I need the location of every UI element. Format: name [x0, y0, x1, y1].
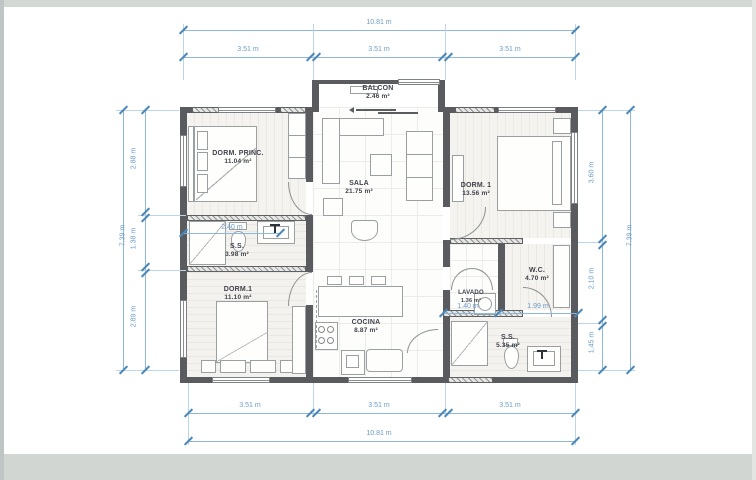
dim-label-right-seg: 2.10 m: [589, 249, 596, 309]
bed-fold-line: [216, 332, 268, 362]
dim-label-top-seg: 3.51 m: [450, 46, 570, 53]
stove-burner: [318, 326, 325, 333]
bed-foot-cushion: [250, 360, 276, 373]
window: [498, 107, 556, 113]
window: [212, 377, 270, 383]
wall-lavado-wc: [498, 244, 505, 310]
room-area: 8.87 m²: [340, 327, 392, 335]
side-table: [323, 198, 343, 216]
dim-label-top-seg: 3.51 m: [188, 46, 308, 53]
room-label-wc: W.C. 4.70 m²: [514, 267, 560, 283]
wall-dormprinc-sala: [306, 107, 313, 182]
dim-line-interior-lavado-wc: [443, 313, 579, 314]
stove-burner: [327, 326, 334, 333]
dim-line-top-total: [183, 30, 576, 31]
stool: [371, 276, 386, 285]
stool: [327, 276, 342, 285]
room-label-cocina: COCINA 8.87 m²: [340, 319, 392, 335]
dim-label-bottom-seg: 3.51 m: [190, 402, 310, 409]
hatched-wall: [450, 238, 523, 244]
sliding-door-panel: [356, 109, 396, 111]
room-name: DORM.1: [204, 286, 272, 294]
floor-plan: 10.81 m 3.51 m 3.51 m 3.51 m 3.51 m 3.51…: [0, 0, 756, 480]
room-label-bano-social: S.S. 3.98 m²: [214, 243, 260, 259]
dim-line-left-segments: [145, 110, 146, 371]
room-area: 3.98 m²: [214, 251, 260, 259]
dim-label-interior-wc: 1.99 m: [498, 303, 578, 310]
dim-label-left-seg: 1.38 m: [131, 209, 138, 269]
extension-line: [116, 370, 179, 371]
dim-line-interior-bath: [183, 233, 281, 234]
kitchen-sink-basin: [346, 355, 359, 368]
dim-label-left-total: 7.39 m: [120, 206, 127, 266]
room-name: S.S.: [485, 334, 531, 342]
stove-burner: [318, 337, 325, 344]
bath-vanity-basin: [533, 351, 555, 366]
faucet-icon: [541, 352, 543, 359]
dim-label-bottom-total: 10.81 m: [319, 430, 439, 437]
wall-sala-dorm1-mid: [443, 240, 450, 267]
room-area: 1.36 m²: [447, 297, 495, 305]
sliding-door-arrow-icon: [349, 107, 354, 113]
dim-label-left-seg: 2.89 m: [131, 287, 138, 347]
window: [180, 135, 187, 187]
dresser-dorm1-left: [292, 306, 306, 374]
closet-shelf-line: [289, 135, 305, 136]
wall-bath-right: [306, 215, 313, 272]
window: [571, 132, 578, 204]
stove-burner: [327, 337, 334, 344]
kitchen-island: [318, 286, 403, 317]
dim-label-bottom-seg: 3.51 m: [450, 402, 570, 409]
dim-label-right-seg: 1.45 m: [589, 313, 596, 373]
room-label-dorm1-left: DORM.1 11.10 m²: [204, 286, 272, 302]
shower-diagonal: [451, 321, 488, 366]
room-area: 11.04 m²: [198, 158, 278, 166]
window: [218, 107, 276, 113]
window: [348, 377, 412, 383]
dim-label-right-total: 7.39 m: [627, 206, 634, 266]
sofa-side: [322, 118, 340, 184]
nightstand: [553, 212, 571, 228]
counter-dashed-line: [316, 290, 317, 348]
wall-dorm1left-right: [306, 305, 313, 377]
room-area: 11.10 m²: [204, 294, 272, 302]
extension-line: [575, 24, 576, 80]
room-area: 13.56 m²: [444, 190, 508, 198]
coffee-table: [370, 154, 392, 176]
room-name: DORM. 1: [444, 182, 508, 190]
dim-label-left-seg: 2.88 m: [131, 129, 138, 189]
dim-label-interior-bath: 2.40 m: [183, 224, 281, 231]
kitchen-counter: [366, 349, 403, 372]
room-name: W.C.: [514, 267, 560, 275]
pillow: [197, 174, 208, 193]
room-label-ss-right: S.S. 5.35 m²: [485, 334, 531, 350]
closet-shelf-line: [289, 157, 305, 158]
room-name: LAVADO: [447, 289, 495, 297]
bed-pillow-column: [552, 141, 562, 205]
room-name: BALCON: [342, 85, 414, 93]
room-name: SALA: [328, 180, 390, 188]
room-label-sala: SALA 21.75 m²: [328, 180, 390, 196]
nightstand: [553, 118, 571, 134]
bed-foot-cushion: [220, 360, 246, 373]
bed-foot-cushion: [280, 360, 293, 373]
pillow: [197, 131, 208, 150]
sofa-right: [406, 131, 433, 201]
closet-dorm-princ: [288, 113, 306, 179]
hatched-wall: [455, 107, 495, 113]
room-area: 4.70 m²: [514, 275, 560, 283]
dim-label-top-seg: 3.51 m: [319, 46, 439, 53]
room-name: DORM. PRINC.: [198, 150, 278, 158]
window: [180, 300, 187, 358]
room-area: 5.35 m²: [485, 342, 531, 350]
room-label-balcon: BALCON 2.46 m²: [342, 85, 414, 101]
sofa-cushion-line: [407, 154, 432, 155]
wall-balcony-left: [312, 80, 319, 112]
extension-line: [116, 110, 179, 111]
room-area: 2.46 m²: [342, 93, 414, 101]
dim-label-top-total: 10.81 m: [319, 19, 439, 26]
room-name: COCINA: [340, 319, 392, 327]
room-label-dorm-princ: DORM. PRINC. 11.04 m²: [198, 150, 278, 166]
stool: [349, 276, 364, 285]
hatched-wall: [448, 377, 493, 383]
room-label-dorm1-right: DORM. 1 13.56 m²: [444, 182, 508, 198]
dim-line-bottom-segments: [188, 413, 576, 414]
armchair-round: [351, 220, 378, 241]
hatched-wall: [187, 266, 306, 272]
sofa-cushion-line: [407, 177, 432, 178]
room-name: S.S.: [214, 243, 260, 251]
dim-label-right-seg: 3.60 m: [589, 143, 596, 203]
dim-line-bottom-total: [188, 441, 576, 442]
room-label-lavado: LAVADO 1.36 m²: [447, 289, 495, 305]
bed-foot-cushion: [201, 360, 216, 373]
dim-line-top-segments: [183, 57, 576, 58]
dim-label-bottom-seg: 3.51 m: [319, 402, 439, 409]
floor-plan-page: 10.81 m 3.51 m 3.51 m 3.51 m 3.51 m 3.51…: [0, 0, 756, 480]
room-area: 21.75 m²: [328, 188, 390, 196]
sliding-door-panel: [378, 112, 418, 114]
extension-line: [183, 24, 184, 80]
